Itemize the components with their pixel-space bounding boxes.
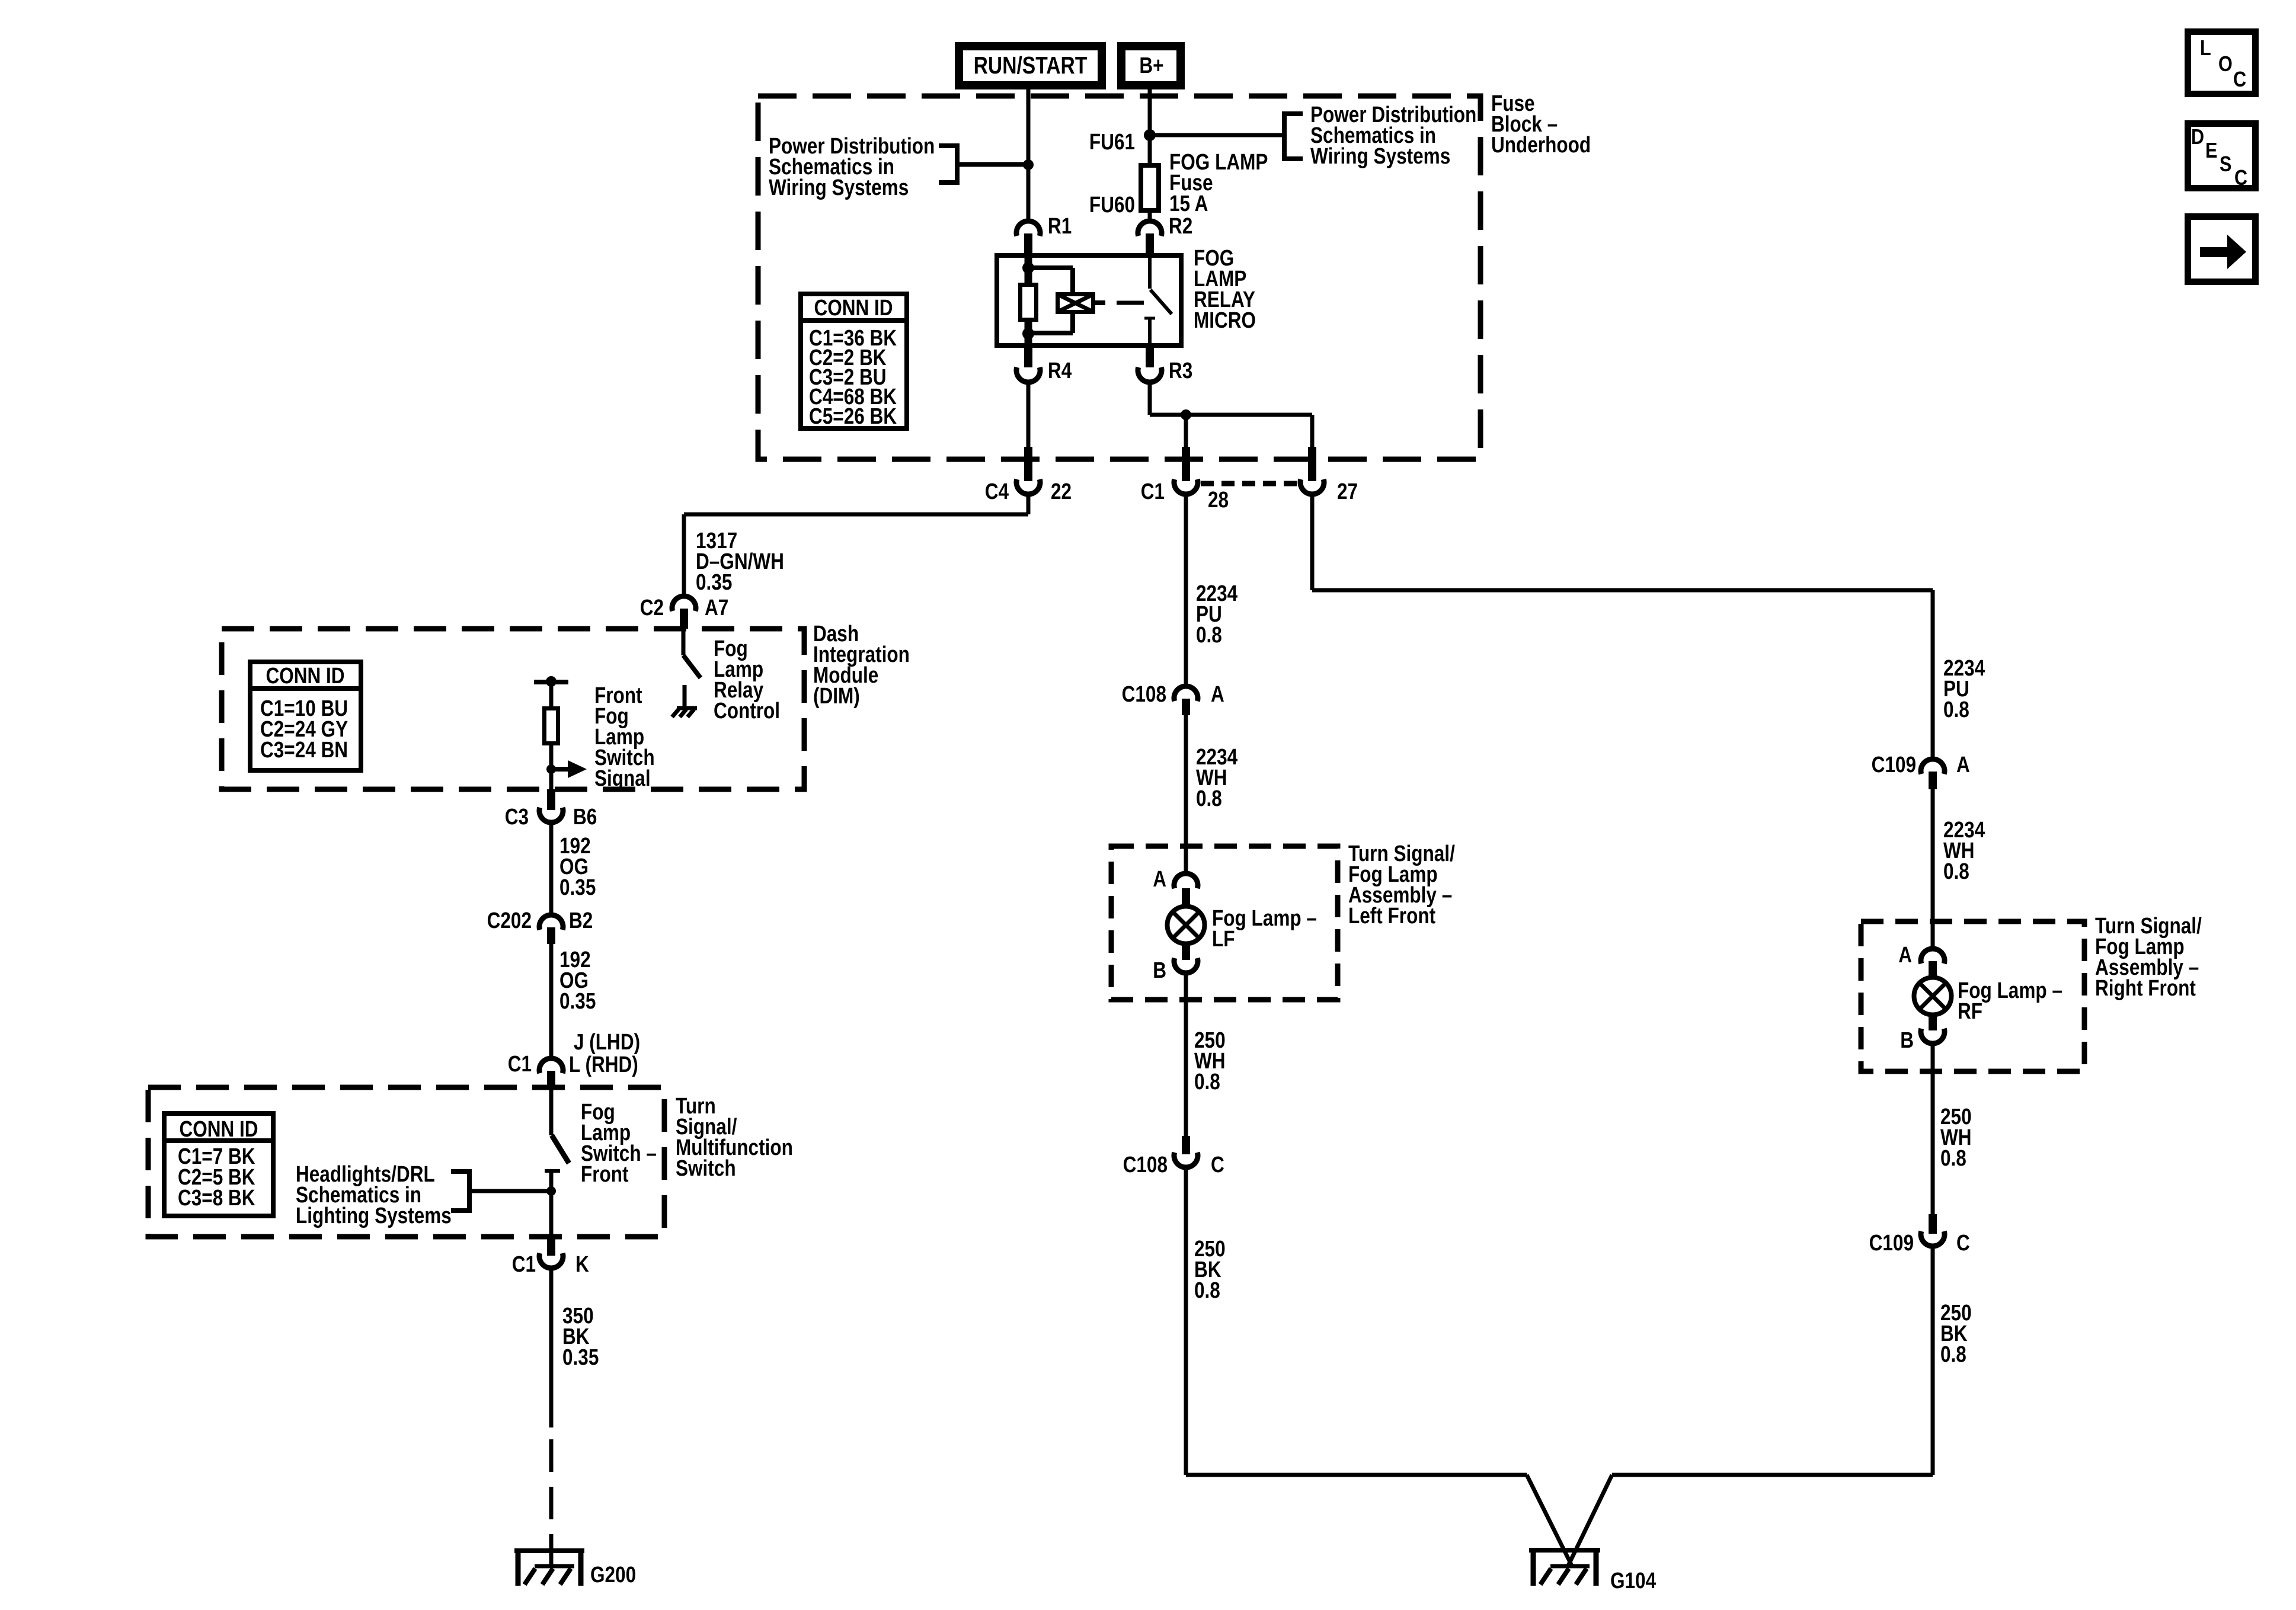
svg-text:C109: C109	[1869, 1230, 1914, 1255]
svg-text:R4: R4	[1048, 358, 1072, 383]
svg-text:S: S	[2220, 153, 2231, 177]
svg-text:A7: A7	[705, 595, 728, 620]
svg-text:C108: C108	[1123, 1152, 1168, 1177]
svg-text:C: C	[2234, 167, 2247, 190]
svg-text:22: 22	[1051, 479, 1072, 504]
svg-text:A: A	[1211, 681, 1224, 706]
svg-text:C1: C1	[512, 1251, 536, 1276]
svg-text:K: K	[575, 1251, 589, 1276]
svg-text:D: D	[2191, 126, 2204, 149]
svg-text:B: B	[1900, 1028, 1914, 1052]
svg-text:28: 28	[1208, 487, 1229, 512]
svg-text:G104: G104	[1610, 1568, 1657, 1593]
svg-text:C1: C1	[1141, 479, 1165, 504]
svg-text:27: 27	[1337, 479, 1358, 504]
svg-text:RUN/START: RUN/START	[974, 52, 1088, 79]
svg-text:R3: R3	[1169, 358, 1192, 383]
svg-text:J (LHD): J (LHD)	[574, 1029, 640, 1054]
svg-text:L (RHD): L (RHD)	[569, 1052, 638, 1077]
svg-text:A: A	[1898, 942, 1912, 967]
svg-text:CONN ID: CONN ID	[179, 1116, 258, 1141]
svg-text:C202: C202	[487, 908, 532, 933]
svg-text:A: A	[1153, 866, 1166, 891]
svg-text:C: C	[1956, 1230, 1970, 1255]
svg-text:R1: R1	[1048, 213, 1072, 238]
svg-text:C1: C1	[508, 1051, 532, 1076]
svg-text:C3: C3	[505, 804, 529, 829]
svg-text:C1=36 BKC2=2 BKC3=2 BUC4=68 BK: C1=36 BKC2=2 BKC3=2 BUC4=68 BKC5=26 BK	[809, 325, 897, 428]
svg-text:C109: C109	[1872, 752, 1916, 777]
svg-text:R2: R2	[1169, 213, 1192, 238]
svg-text:B2: B2	[569, 908, 593, 933]
svg-text:C1=7 BKC2=5 BKC3=8 BK: C1=7 BKC2=5 BKC3=8 BK	[178, 1144, 255, 1210]
svg-text:CONN ID: CONN ID	[814, 295, 893, 320]
svg-text:C2: C2	[640, 595, 664, 620]
svg-text:E: E	[2205, 139, 2217, 163]
svg-text:B6: B6	[573, 804, 597, 829]
svg-text:L: L	[2200, 37, 2211, 60]
svg-text:C108: C108	[1122, 681, 1166, 706]
svg-text:B: B	[1153, 958, 1166, 982]
svg-text:Turn Signal/Fog LampAssembly –: Turn Signal/Fog LampAssembly –Right Fron…	[2095, 913, 2202, 1000]
svg-text:C4: C4	[985, 479, 1009, 504]
svg-text:O: O	[2218, 53, 2233, 76]
svg-text:FU61: FU61	[1089, 129, 1135, 154]
svg-text:C: C	[2233, 68, 2246, 92]
svg-text:CONN ID: CONN ID	[266, 663, 344, 688]
svg-text:A: A	[1956, 752, 1970, 777]
svg-text:C1=10 BUC2=24 GYC3=24 BN: C1=10 BUC2=24 GYC3=24 BN	[260, 696, 348, 762]
svg-text:C: C	[1211, 1152, 1224, 1177]
svg-text:FU60: FU60	[1089, 192, 1135, 217]
svg-text:G200: G200	[590, 1562, 636, 1587]
svg-text:B+: B+	[1139, 53, 1163, 78]
